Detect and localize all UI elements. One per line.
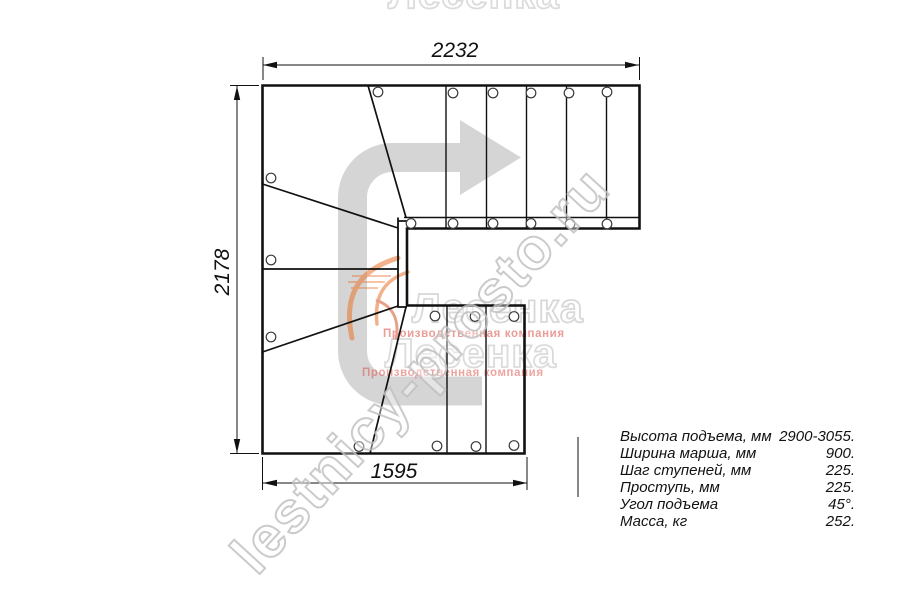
spec-row: Высота подъема, мм2900-3055. (620, 429, 855, 446)
spec-value: 900. (826, 446, 855, 463)
spec-label: Шаг ступеней, мм (620, 463, 751, 480)
spec-value: 2900-3055. (779, 429, 855, 446)
spec-row: Проступь, мм225. (620, 480, 855, 497)
brand-logo-word: Лесенка (388, 0, 560, 17)
site-watermark-text: lestnicy-prosto.ru (219, 155, 623, 586)
spec-table: Высота подъема, мм2900-3055.Ширина марша… (620, 429, 855, 530)
spec-label: Ширина марша, мм (620, 446, 756, 463)
spec-row: Шаг ступеней, мм225. (620, 463, 855, 480)
spec-label: Высота подъема, мм (620, 429, 772, 446)
spec-label: Угол подъема (620, 497, 718, 514)
spec-row: Масса, кг252. (620, 514, 855, 531)
spec-value: 225. (826, 463, 855, 480)
dimension-left: 2178 (211, 86, 259, 454)
dimension-top: 2232 (263, 39, 640, 80)
dimension-top-label: 2232 (431, 39, 479, 62)
spec-value: 225. (826, 480, 855, 497)
dimension-left-label: 2178 (211, 248, 234, 296)
spec-value: 45°. (828, 497, 855, 514)
spec-value: 252. (826, 514, 855, 531)
brand-watermark-top-partial: Лесенка (388, 0, 560, 17)
spec-row: Ширина марша, мм900. (620, 446, 855, 463)
stair-plan-page: Лесенка Производственная компания Лесенк… (0, 0, 900, 600)
spec-label: Масса, кг (620, 514, 687, 531)
spec-label: Проступь, мм (620, 480, 720, 497)
spec-row: Угол подъема45°. (620, 497, 855, 514)
